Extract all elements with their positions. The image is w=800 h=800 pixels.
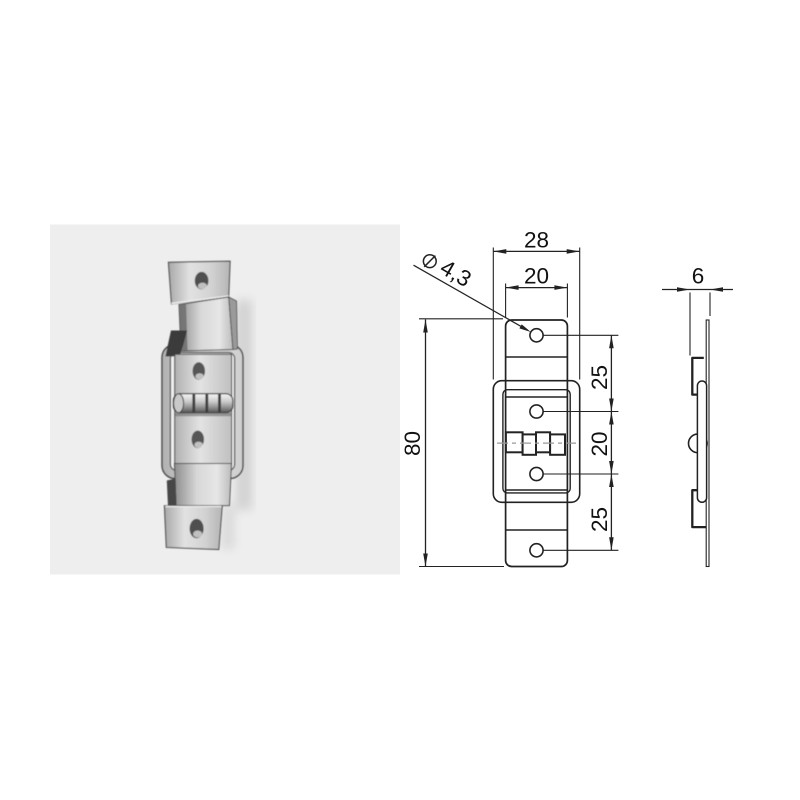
svg-text:6: 6: [692, 264, 705, 289]
svg-text:80: 80: [400, 431, 425, 456]
svg-text:20: 20: [524, 264, 549, 289]
svg-text:28: 28: [524, 228, 549, 253]
svg-text:25: 25: [587, 365, 612, 390]
svg-text:20: 20: [587, 431, 612, 456]
svg-text:25: 25: [587, 507, 612, 532]
